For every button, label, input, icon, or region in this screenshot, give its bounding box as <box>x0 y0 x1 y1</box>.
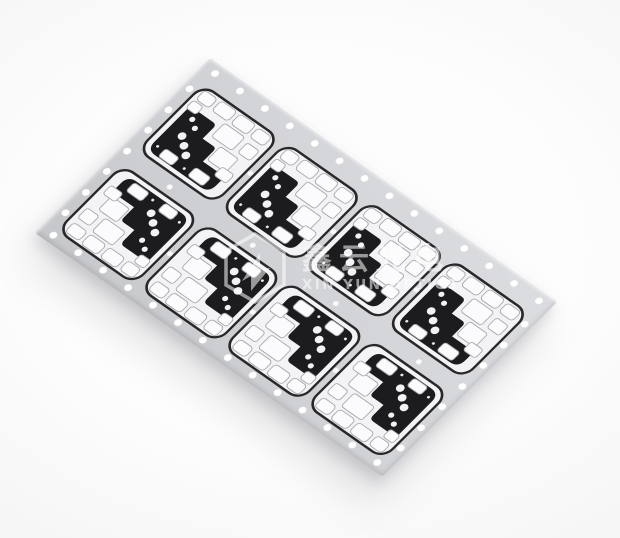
sprocket-hole <box>234 86 246 96</box>
sprocket-hole <box>209 69 221 79</box>
sprocket-hole <box>409 208 421 218</box>
tooling-hole <box>166 184 174 191</box>
pcb-panel <box>35 58 557 477</box>
sprocket-hole <box>259 104 271 114</box>
sprocket-hole <box>458 243 470 253</box>
product-photo: 鑫云光电 XIN YUN OPTICS <box>0 0 620 538</box>
tooling-hole <box>249 242 257 249</box>
sprocket-hole <box>284 121 296 131</box>
sprocket-hole <box>309 139 321 149</box>
sprocket-hole <box>433 226 445 236</box>
tooling-hole <box>415 358 423 365</box>
tooling-hole <box>332 300 340 307</box>
sprocket-hole <box>359 174 371 184</box>
sprocket-hole <box>457 381 469 391</box>
sprocket-hole <box>483 261 495 271</box>
sprocket-hole <box>122 146 134 156</box>
sprocket-hole <box>508 278 520 288</box>
sprocket-hole <box>334 156 346 166</box>
sprocket-hole <box>533 296 545 306</box>
sprocket-hole <box>384 191 396 201</box>
